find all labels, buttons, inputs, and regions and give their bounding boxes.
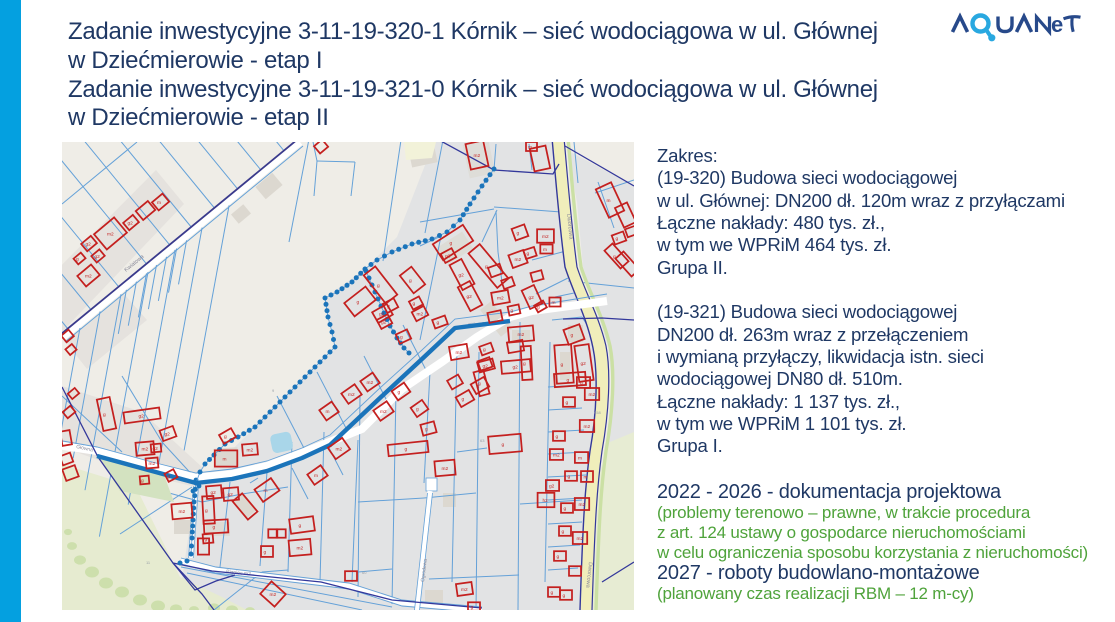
svg-text:g2: g2 bbox=[128, 220, 134, 226]
svg-text:g: g bbox=[483, 348, 486, 353]
svg-text:m2: m2 bbox=[270, 592, 277, 598]
svg-text:m2: m2 bbox=[461, 587, 468, 593]
svg-text:g: g bbox=[567, 378, 570, 383]
svg-text:g: g bbox=[357, 300, 360, 305]
svg-text:m2: m2 bbox=[247, 447, 254, 453]
svg-text:g2: g2 bbox=[153, 446, 159, 452]
svg-text:g: g bbox=[103, 413, 106, 418]
svg-text:m: m bbox=[223, 457, 227, 462]
svg-text:m2: m2 bbox=[417, 311, 424, 317]
svg-text:g: g bbox=[264, 550, 267, 555]
svg-text:m2: m2 bbox=[179, 509, 186, 515]
svg-text:g: g bbox=[561, 363, 564, 368]
svg-text:g: g bbox=[168, 474, 171, 479]
svg-text:g: g bbox=[556, 435, 559, 440]
svg-text:m: m bbox=[326, 410, 330, 415]
svg-text:g: g bbox=[409, 279, 412, 284]
svg-text:m: m bbox=[584, 475, 588, 480]
svg-text:m2: m2 bbox=[142, 446, 149, 452]
svg-text:m2: m2 bbox=[518, 332, 525, 338]
svg-text:g: g bbox=[517, 231, 520, 236]
svg-text:g: g bbox=[450, 241, 453, 246]
svg-text:g: g bbox=[413, 302, 416, 307]
svg-text:m: m bbox=[314, 474, 318, 479]
svg-text:g2: g2 bbox=[211, 490, 217, 496]
svg-text:m2: m2 bbox=[149, 461, 156, 467]
svg-text:g: g bbox=[580, 381, 583, 386]
svg-text:m: m bbox=[264, 489, 268, 494]
svg-text:g: g bbox=[557, 555, 560, 560]
svg-text:g: g bbox=[523, 362, 526, 367]
svg-text:m2: m2 bbox=[85, 273, 92, 279]
svg-text:g: g bbox=[616, 237, 619, 242]
svg-text:m2: m2 bbox=[348, 392, 355, 398]
svg-text:m2: m2 bbox=[497, 295, 504, 301]
svg-text:m2: m2 bbox=[579, 502, 586, 508]
svg-text:g: g bbox=[564, 507, 567, 512]
svg-text:g2: g2 bbox=[513, 364, 519, 370]
svg-text:g2: g2 bbox=[459, 272, 465, 278]
svg-text:g: g bbox=[563, 594, 566, 599]
svg-text:458: 458 bbox=[594, 410, 601, 415]
svg-text:m2: m2 bbox=[107, 231, 114, 237]
svg-text:m2: m2 bbox=[442, 466, 449, 472]
svg-text:m2: m2 bbox=[456, 350, 463, 356]
svg-text:g: g bbox=[224, 435, 227, 440]
svg-text:g: g bbox=[425, 427, 428, 432]
svg-text:m: m bbox=[528, 145, 532, 150]
svg-text:g2: g2 bbox=[95, 254, 101, 260]
svg-text:g2: g2 bbox=[381, 319, 387, 325]
svg-text:m2: m2 bbox=[584, 424, 591, 430]
svg-text:g: g bbox=[551, 591, 554, 596]
svg-text:g: g bbox=[398, 390, 401, 395]
svg-text:g: g bbox=[571, 333, 574, 338]
svg-text:g: g bbox=[205, 509, 208, 514]
svg-text:m2: m2 bbox=[367, 380, 374, 386]
svg-text:g2: g2 bbox=[139, 413, 145, 419]
svg-text:g: g bbox=[462, 397, 465, 402]
svg-text:h2: h2 bbox=[543, 498, 549, 504]
svg-text:g2: g2 bbox=[529, 295, 535, 301]
svg-text:m2: m2 bbox=[553, 452, 560, 458]
svg-text:m: m bbox=[552, 301, 556, 306]
svg-text:g: g bbox=[416, 407, 419, 412]
svg-text:m: m bbox=[607, 199, 611, 204]
svg-text:g2: g2 bbox=[228, 492, 234, 498]
svg-text:m: m bbox=[157, 201, 161, 206]
svg-text:g: g bbox=[566, 401, 569, 406]
svg-text:m2: m2 bbox=[589, 392, 596, 398]
svg-text:g: g bbox=[437, 321, 440, 326]
svg-text:g: g bbox=[400, 335, 403, 340]
svg-text:g2: g2 bbox=[86, 241, 92, 247]
svg-text:g2: g2 bbox=[549, 483, 555, 489]
svg-text:g2: g2 bbox=[165, 431, 171, 437]
svg-text:g: g bbox=[527, 252, 530, 257]
svg-text:g: g bbox=[537, 305, 540, 310]
svg-text:g: g bbox=[299, 524, 302, 529]
svg-text:e: e bbox=[1051, 12, 1063, 37]
svg-text:m2: m2 bbox=[515, 257, 522, 263]
svg-text:g: g bbox=[562, 530, 565, 535]
svg-text:60: 60 bbox=[362, 570, 367, 575]
svg-text:g: g bbox=[477, 384, 480, 389]
svg-text:m2: m2 bbox=[297, 545, 304, 551]
svg-text:63: 63 bbox=[480, 438, 485, 443]
svg-text:m2: m2 bbox=[380, 409, 387, 415]
svg-text:g: g bbox=[502, 443, 505, 448]
svg-text:g: g bbox=[141, 479, 144, 484]
svg-text:g: g bbox=[568, 475, 571, 480]
svg-text:g2: g2 bbox=[445, 253, 451, 259]
svg-text:m: m bbox=[578, 456, 582, 461]
svg-text:m2: m2 bbox=[577, 536, 584, 542]
svg-text:g2: g2 bbox=[467, 294, 473, 300]
svg-text:m2: m2 bbox=[474, 153, 481, 159]
svg-text:g: g bbox=[205, 537, 208, 542]
svg-text:g: g bbox=[471, 605, 474, 610]
svg-text:m2: m2 bbox=[336, 446, 343, 452]
svg-text:g: g bbox=[405, 447, 408, 452]
svg-text:m: m bbox=[543, 248, 547, 253]
svg-text:g: g bbox=[76, 257, 79, 262]
svg-text:g2: g2 bbox=[581, 361, 587, 367]
svg-text:m2: m2 bbox=[542, 234, 549, 240]
svg-text:g: g bbox=[377, 284, 380, 289]
svg-text:g: g bbox=[511, 309, 514, 314]
svg-text:g: g bbox=[213, 525, 216, 530]
